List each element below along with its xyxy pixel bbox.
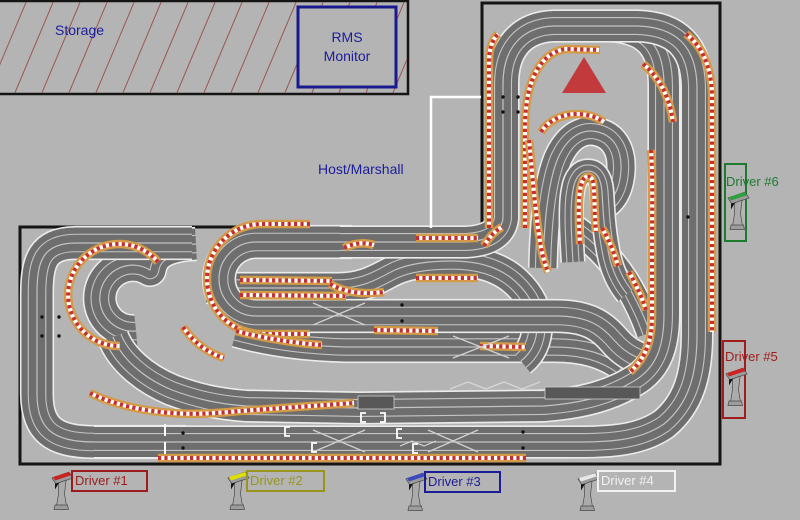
rms-monitor-line2: Monitor bbox=[324, 47, 371, 66]
driver4-label: Driver #4 bbox=[597, 470, 676, 492]
rms-monitor-line1: RMS bbox=[331, 28, 362, 47]
driver2-label: Driver #2 bbox=[246, 470, 325, 492]
track-diagram-canvas bbox=[0, 0, 800, 520]
driver6-label: Driver #6 bbox=[726, 173, 779, 191]
driver1-label: Driver #1 bbox=[71, 470, 148, 492]
storage-label: Storage bbox=[55, 22, 104, 38]
driver5-label: Driver #5 bbox=[725, 348, 778, 366]
host-marshall-label: Host/Marshall bbox=[318, 161, 404, 177]
room-layout-diagram: Storage RMS Monitor Host/Marshall Driver… bbox=[0, 0, 800, 520]
rms-monitor-label: RMS Monitor bbox=[299, 8, 395, 86]
driver3-label: Driver #3 bbox=[424, 471, 501, 493]
